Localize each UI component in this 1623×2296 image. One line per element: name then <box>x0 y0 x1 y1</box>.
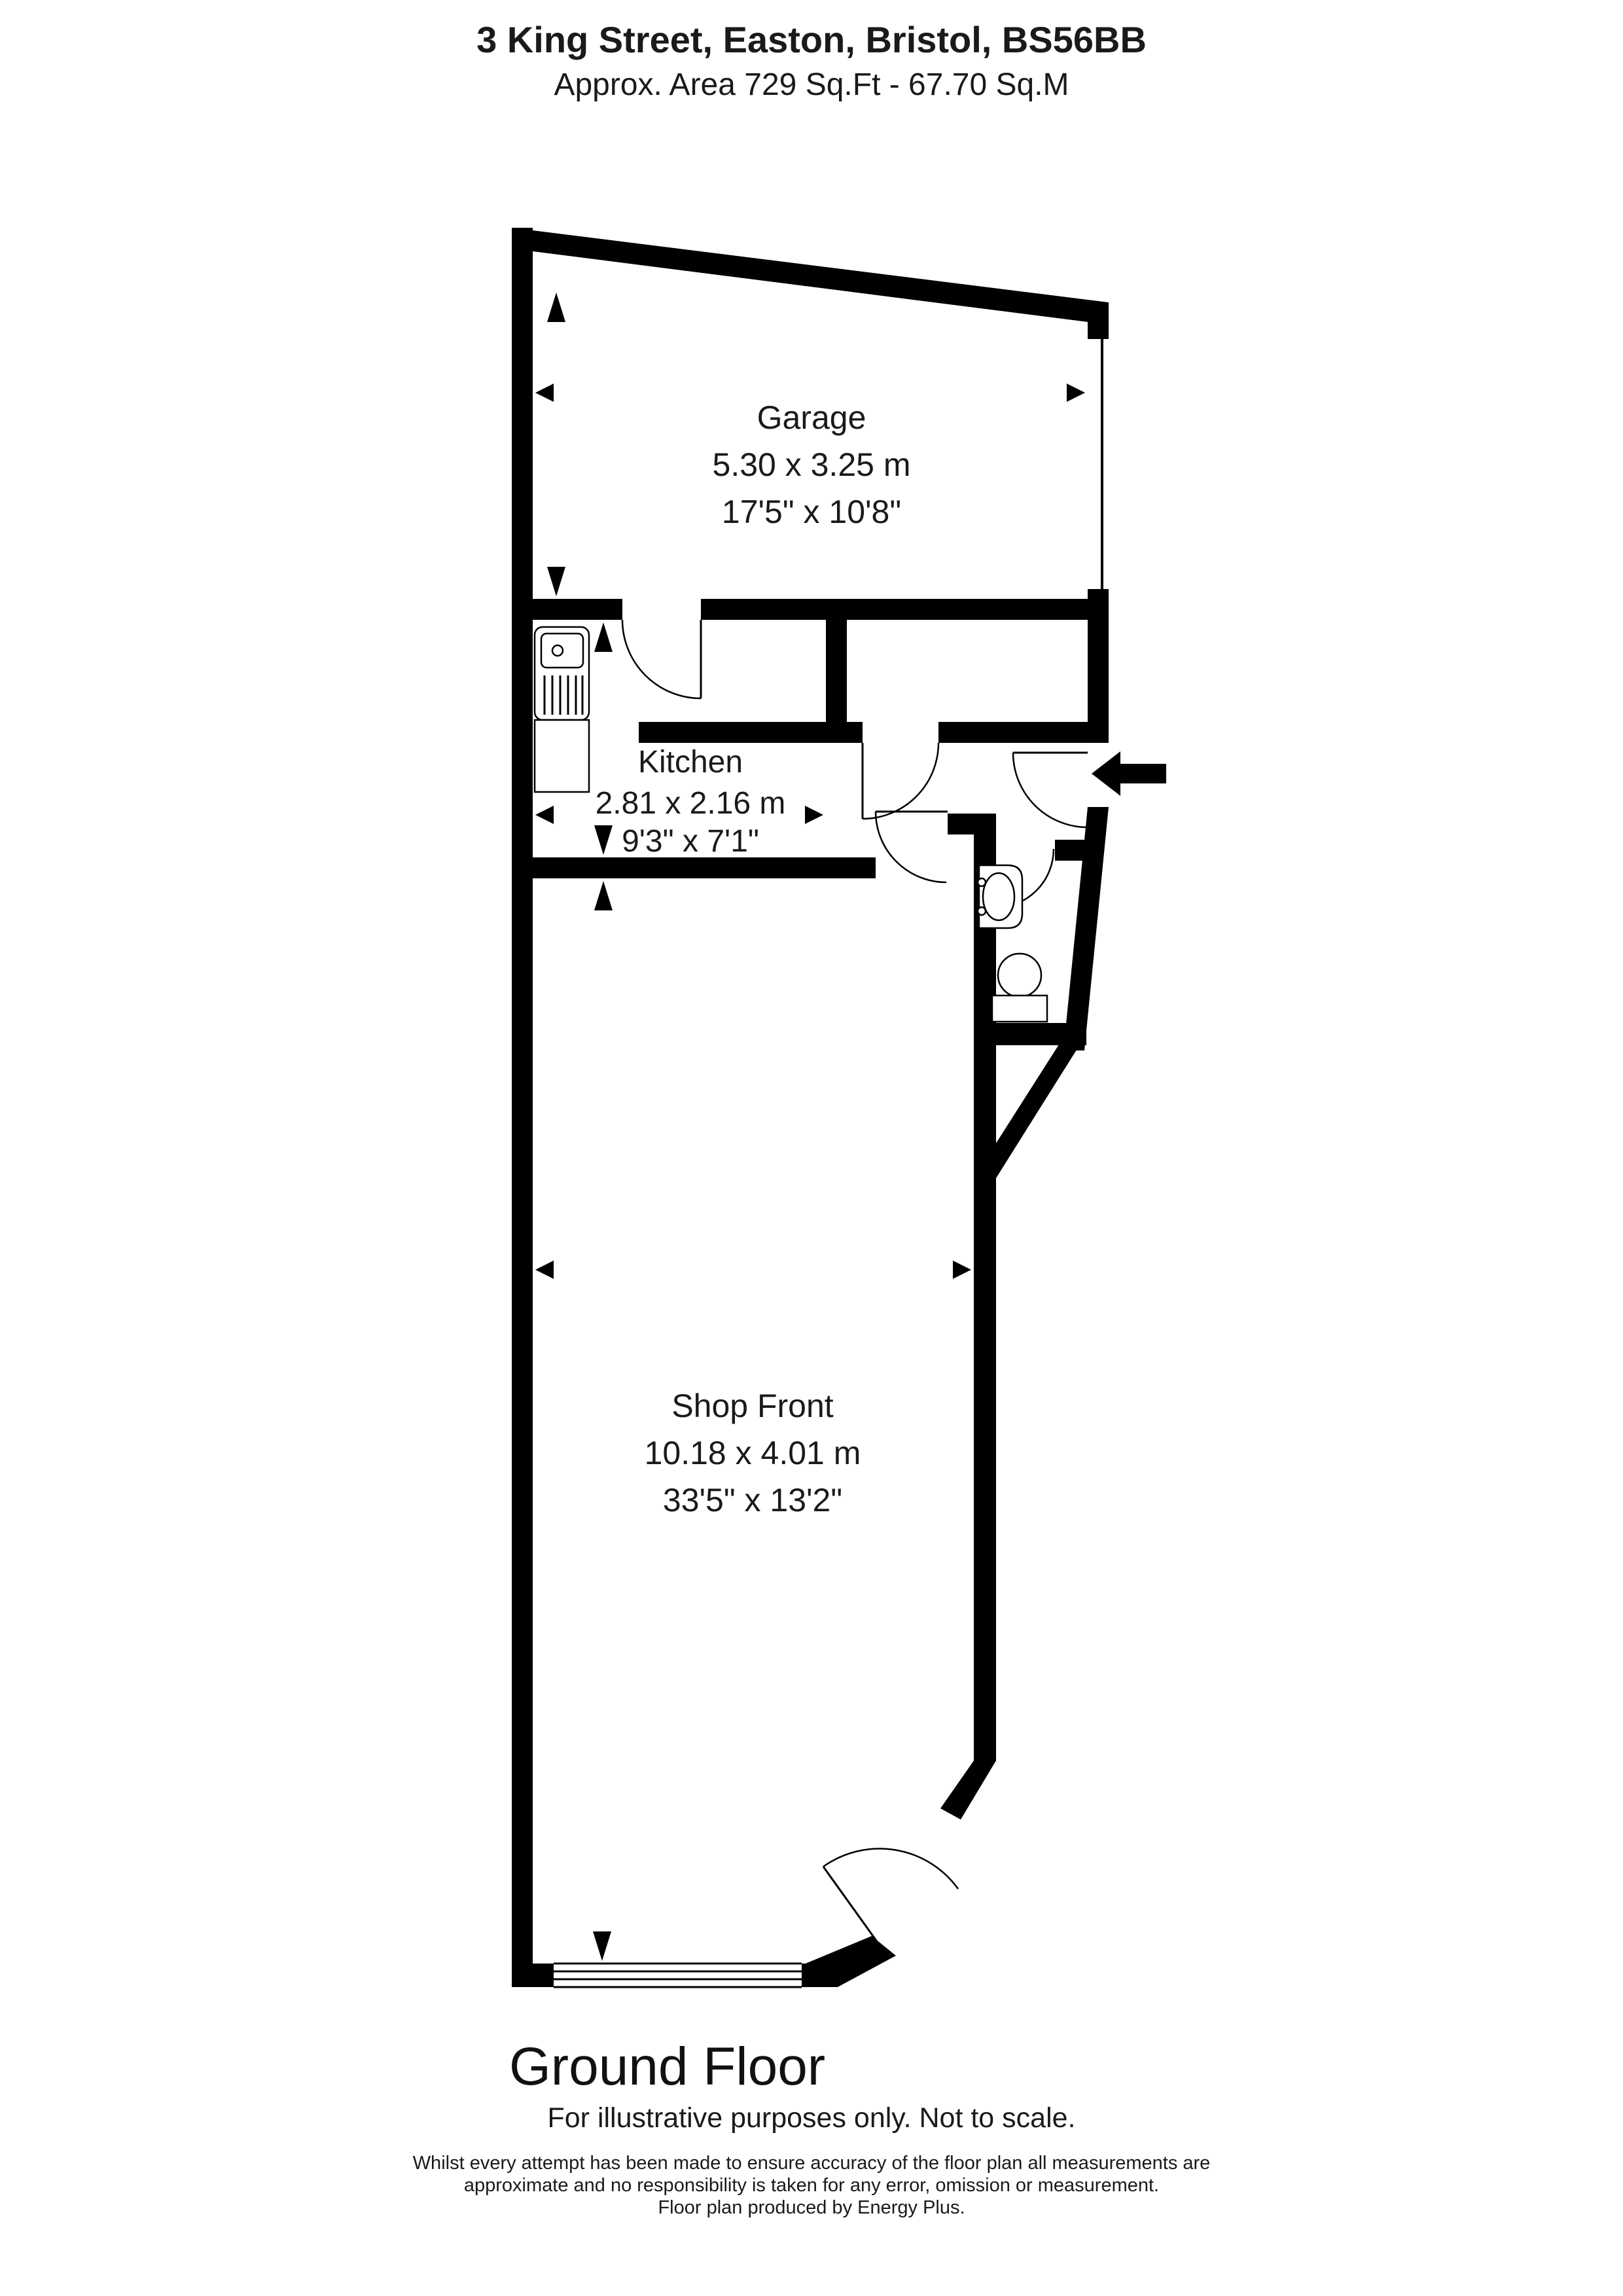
wall-hall-top-right-seg <box>938 722 1109 743</box>
toilet-cistern <box>992 996 1047 1022</box>
entry-arrow-icon <box>1092 751 1166 796</box>
shop-height-arrow-down-icon <box>593 1931 611 1961</box>
kitchen-counter <box>535 720 589 792</box>
shop-front-dims-metric: 10.18 x 4.01 m <box>645 1435 861 1471</box>
door-shopfront-leaf <box>823 1867 880 1945</box>
garage-height-arrow-down-icon <box>547 567 565 596</box>
wall-shop-right <box>974 814 996 1761</box>
kitchen-dims-imperial: 9'3" x 7'1" <box>622 824 759 859</box>
shop-window <box>554 1964 802 1987</box>
kitchen-height-arrow-down-icon <box>594 825 613 855</box>
wc-tap-1 <box>978 878 986 886</box>
entry-arrow-head <box>1092 751 1120 796</box>
wall-kitchen-bottom <box>512 857 876 878</box>
room-labels: Garage 5.30 x 3.25 m 17'5" x 10'8" Kitch… <box>596 399 911 1518</box>
wall-garage-top-slanted <box>512 228 1109 325</box>
wall-kitchen-nook <box>639 722 826 743</box>
door-garage-arc <box>622 620 701 698</box>
wall-garage-bottom-right-seg <box>701 599 1109 620</box>
shop-front-label: Shop Front <box>671 1388 833 1424</box>
shop-width-arrow-right-icon <box>953 1261 971 1279</box>
floor-plan-canvas: Garage 5.30 x 3.25 m 17'5" x 10'8" Kitch… <box>0 0 1623 2296</box>
kitchen-width-arrow-left-icon <box>535 806 554 824</box>
wall-window-right-block <box>802 1964 832 1987</box>
wall-hall-jamb-stub <box>948 814 974 834</box>
garage-width-arrow-right-icon <box>1067 384 1085 402</box>
wall-left <box>512 228 533 1987</box>
dimension-arrows <box>535 293 1085 1961</box>
garage-width-arrow-left-icon <box>535 384 554 402</box>
garage-dims-metric: 5.30 x 3.25 m <box>713 446 911 483</box>
sink-drain-icon <box>552 645 563 656</box>
footer-disclaimer-line2: approximate and no responsibility is tak… <box>0 2174 1623 2197</box>
shop-width-arrow-left-icon <box>535 1261 554 1279</box>
door-shopfront-arc <box>823 1849 958 1889</box>
shop-front-dims-imperial: 33'5" x 13'2" <box>663 1482 842 1518</box>
kitchen-dims-metric: 2.81 x 2.16 m <box>596 786 786 821</box>
wall-hall-top-left-seg <box>847 722 863 743</box>
footer-disclaimer-line1: Whilst every attempt has been made to en… <box>0 2152 1623 2174</box>
footer-disclaimer: Whilst every attempt has been made to en… <box>0 2152 1623 2219</box>
floorplan-page: { "header": { "address": "3 King Street,… <box>0 0 1623 2296</box>
garage-height-arrow-up-icon <box>547 293 565 322</box>
garage-label: Garage <box>757 399 866 436</box>
kitchen-height-arrow-up-icon <box>594 622 613 652</box>
footer-disclaimer-line3: Floor plan produced by Energy Plus. <box>0 2197 1623 2219</box>
wall-garage-topright-block <box>1088 302 1109 339</box>
wall-garage-bottom-left-seg <box>512 599 622 620</box>
door-entry-arc <box>1013 753 1088 827</box>
kitchen-sink-unit <box>535 627 589 792</box>
door-shop-arc <box>876 812 946 882</box>
wall-corner-bottom-left <box>512 1964 554 1987</box>
wall-entrance-upper-diagonal <box>940 1761 996 1820</box>
wc-tap-2 <box>978 907 986 915</box>
garage-dims-imperial: 17'5" x 10'8" <box>722 493 901 530</box>
footer-notice: For illustrative purposes only. Not to s… <box>0 2102 1623 2134</box>
toilet-bowl <box>998 954 1041 997</box>
shop-height-arrow-up-icon <box>594 881 613 910</box>
wc-basin-bowl <box>983 873 1014 920</box>
wall-divider-kitchen-void <box>826 599 847 743</box>
wall-garage-right-thin <box>1101 339 1103 589</box>
door-hall-arc <box>863 743 938 819</box>
walls <box>512 228 1109 1987</box>
kitchen-width-arrow-right-icon <box>805 806 823 824</box>
floor-name-label: Ground Floor <box>509 2037 825 2096</box>
kitchen-label: Kitchen <box>638 745 743 780</box>
entry-arrow-shaft <box>1120 764 1166 783</box>
